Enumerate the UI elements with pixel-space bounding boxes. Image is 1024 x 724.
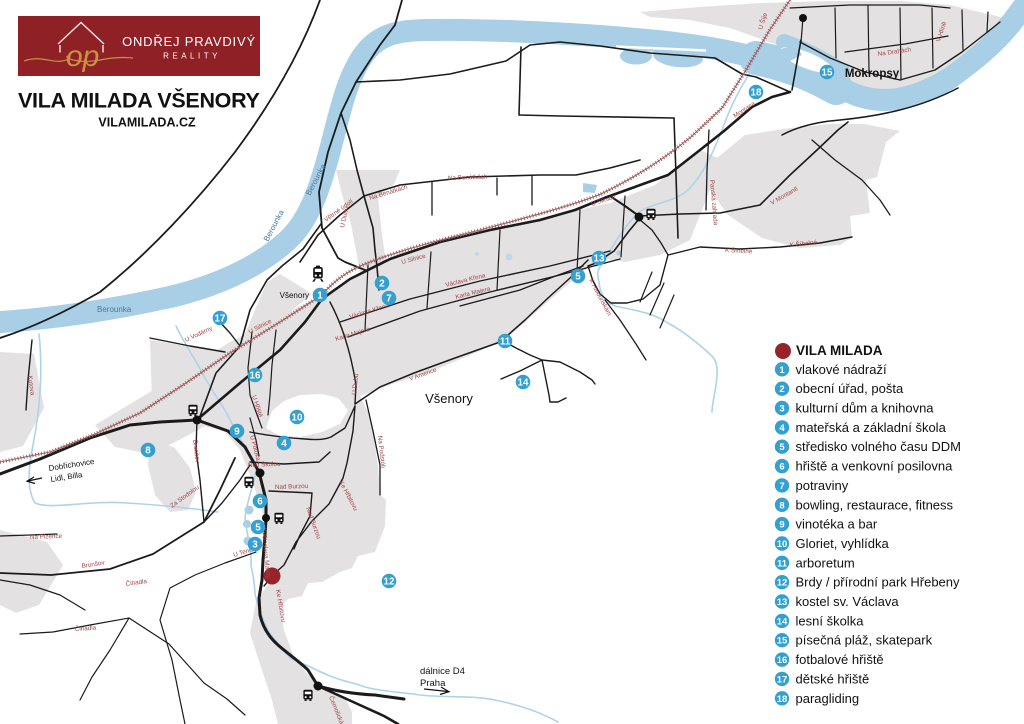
svg-text:2: 2: [379, 279, 385, 290]
svg-text:Na Plzence: Na Plzence: [30, 533, 63, 541]
svg-text:7: 7: [779, 481, 784, 492]
svg-text:12: 12: [777, 578, 788, 589]
svg-text:15: 15: [822, 68, 833, 79]
svg-text:Brdy / přírodní park Hřebeny: Brdy / přírodní park Hřebeny: [796, 575, 961, 590]
svg-text:5: 5: [255, 523, 261, 534]
svg-text:8: 8: [145, 446, 151, 457]
svg-text:14: 14: [777, 616, 788, 627]
svg-text:6: 6: [779, 462, 784, 473]
svg-text:18: 18: [777, 694, 788, 705]
svg-text:VILA MILADA: VILA MILADA: [796, 343, 883, 358]
svg-text:REALITY: REALITY: [163, 52, 221, 61]
svg-text:5: 5: [575, 272, 581, 283]
svg-text:vinotéka a bar: vinotéka a bar: [796, 517, 878, 532]
svg-text:Gloriet, vyhlídka: Gloriet, vyhlídka: [796, 536, 890, 551]
svg-text:16: 16: [777, 655, 788, 666]
svg-text:písečná pláž, skatepark: písečná pláž, skatepark: [796, 633, 933, 648]
svg-text:op: op: [66, 40, 99, 73]
svg-text:dětské hřiště: dětské hřiště: [796, 671, 870, 686]
svg-text:kostel sv. Václava: kostel sv. Václava: [796, 594, 900, 609]
svg-text:13: 13: [594, 254, 605, 265]
svg-text:Mokropsy: Mokropsy: [845, 68, 900, 80]
svg-text:5: 5: [779, 442, 785, 453]
svg-text:ONDŘEJ PRAVDIVÝ: ONDŘEJ PRAVDIVÝ: [122, 34, 256, 49]
svg-text:7: 7: [386, 294, 392, 305]
svg-text:hřiště a venkovní posilovna: hřiště a venkovní posilovna: [796, 459, 954, 474]
svg-text:10: 10: [777, 539, 788, 550]
svg-text:1: 1: [317, 291, 323, 302]
svg-text:9: 9: [234, 427, 240, 438]
svg-text:12: 12: [384, 577, 395, 588]
svg-text:8: 8: [779, 500, 784, 511]
svg-text:fotbalové hřiště: fotbalové hřiště: [796, 652, 884, 667]
svg-text:1: 1: [779, 365, 785, 376]
svg-text:13: 13: [777, 597, 788, 608]
svg-text:kulturní dům a knihovna: kulturní dům a knihovna: [796, 401, 935, 416]
svg-text:bowling, restaurace, fitness: bowling, restaurace, fitness: [796, 497, 954, 512]
svg-text:vlakové nádraží: vlakové nádraží: [796, 362, 887, 377]
svg-text:Nad Burzou: Nad Burzou: [275, 483, 309, 491]
svg-text:10: 10: [292, 413, 303, 424]
svg-text:obecní úřad, pošta: obecní úřad, pošta: [796, 381, 904, 396]
svg-text:potraviny: potraviny: [796, 478, 849, 493]
svg-text:14: 14: [518, 378, 529, 389]
svg-text:11: 11: [500, 337, 511, 348]
svg-text:Všenory: Všenory: [280, 291, 309, 300]
svg-text:Všenory: Všenory: [425, 391, 473, 406]
svg-text:17: 17: [777, 674, 788, 685]
svg-text:15: 15: [777, 636, 788, 647]
svg-text:paragliding: paragliding: [796, 691, 860, 706]
svg-text:4: 4: [779, 423, 785, 434]
svg-text:3: 3: [779, 404, 784, 415]
svg-text:Berounka: Berounka: [97, 305, 132, 314]
svg-text:16: 16: [250, 371, 261, 382]
svg-text:17: 17: [215, 314, 226, 325]
svg-text:3: 3: [252, 540, 258, 551]
svg-text:arboretum: arboretum: [796, 555, 855, 570]
svg-text:4: 4: [281, 439, 287, 450]
svg-text:18: 18: [751, 88, 762, 99]
svg-text:9: 9: [779, 520, 784, 531]
svg-text:VILA MILADA VŠENORY: VILA MILADA VŠENORY: [18, 88, 260, 113]
svg-text:dálnice D4: dálnice D4: [420, 666, 465, 677]
svg-text:VILAMILADA.CZ: VILAMILADA.CZ: [98, 116, 196, 130]
svg-text:Na Benátkách: Na Benátkách: [448, 174, 488, 182]
svg-text:11: 11: [777, 558, 788, 569]
svg-text:mateřská a základní škola: mateřská a základní škola: [796, 420, 947, 435]
svg-text:6: 6: [257, 497, 263, 508]
svg-text:2: 2: [779, 384, 784, 395]
svg-text:středisko volného času DDM: středisko volného času DDM: [796, 439, 961, 454]
svg-text:lesní školka: lesní školka: [796, 613, 865, 628]
